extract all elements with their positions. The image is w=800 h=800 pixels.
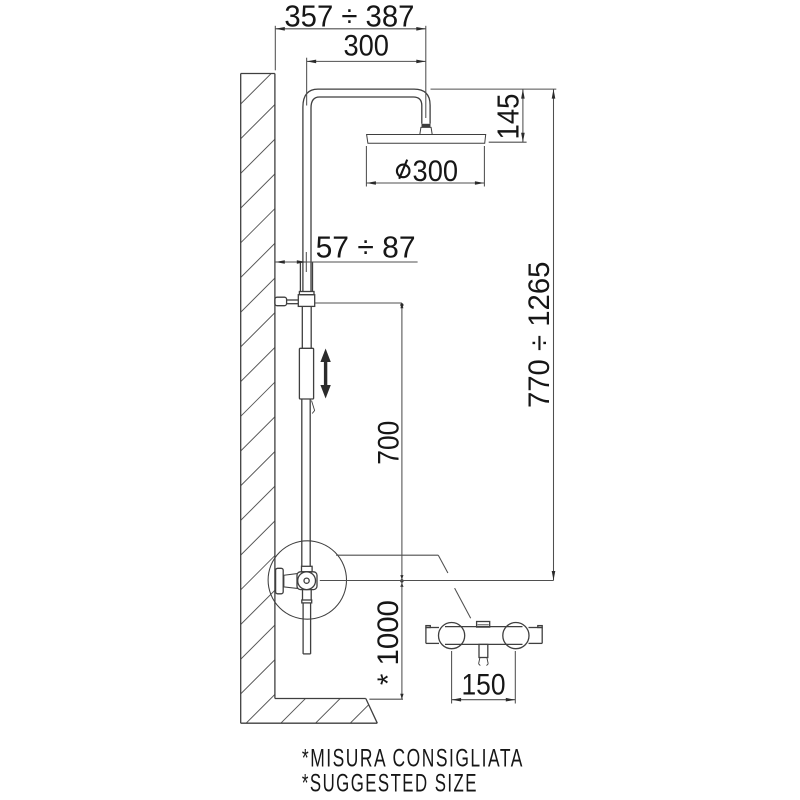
svg-text:357 ÷ 387: 357 ÷ 387: [284, 0, 414, 33]
svg-text:770 ÷ 1265: 770 ÷ 1265: [523, 262, 556, 409]
svg-text:300: 300: [413, 155, 459, 188]
svg-text:57 ÷ 87: 57 ÷ 87: [316, 230, 416, 265]
svg-text:*MISURA CONSIGLIATA: *MISURA CONSIGLIATA: [302, 745, 524, 773]
svg-text:150: 150: [462, 669, 506, 702]
svg-text:700: 700: [372, 421, 405, 465]
svg-text:300: 300: [343, 29, 389, 62]
svg-text:* 1000: * 1000: [372, 600, 405, 685]
svg-text:145: 145: [492, 94, 526, 140]
svg-text:*SUGGESTED SIZE: *SUGGESTED SIZE: [302, 770, 478, 798]
